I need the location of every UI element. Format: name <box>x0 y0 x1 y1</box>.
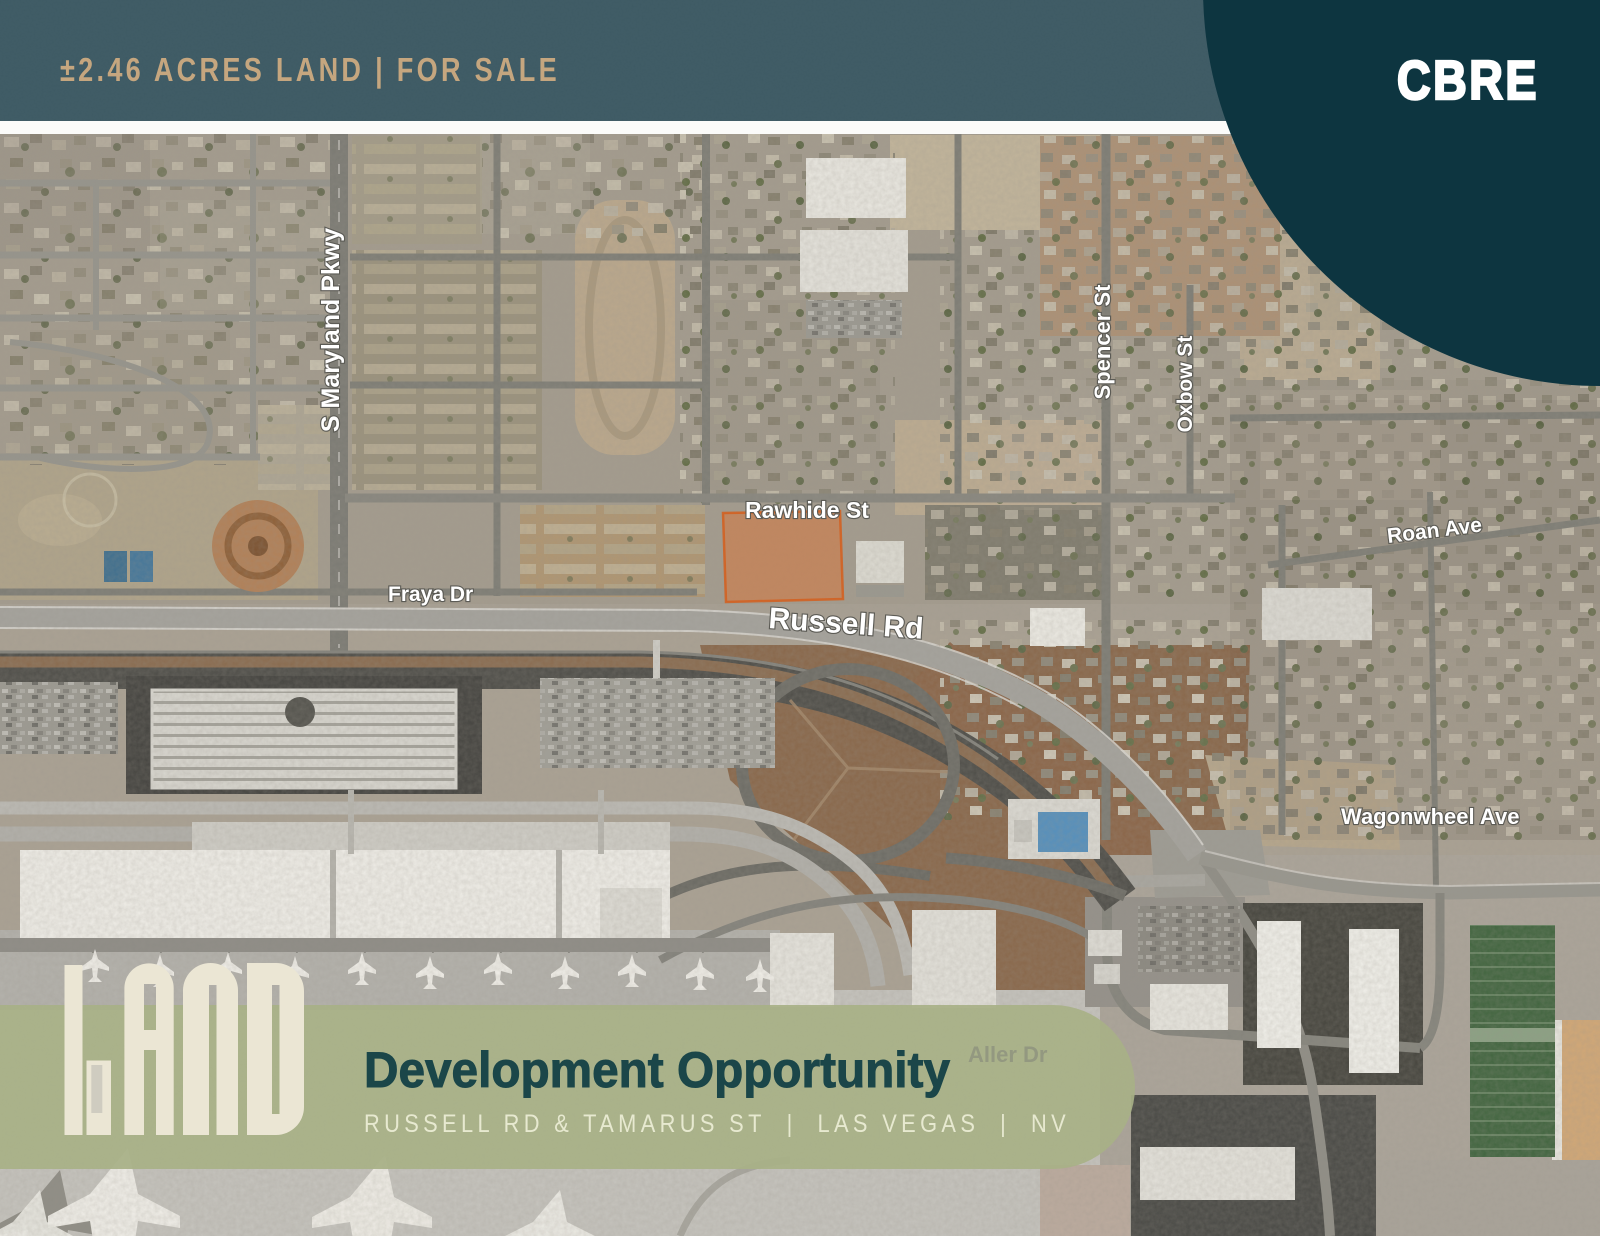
svg-text:S Maryland Pkwy: S Maryland Pkwy <box>317 228 345 432</box>
svg-text:Aller Dr: Aller Dr <box>968 1042 1048 1067</box>
svg-text:Rawhide St: Rawhide St <box>745 497 869 523</box>
svg-text:Development Opportunity: Development Opportunity <box>364 1042 950 1098</box>
svg-text:Spencer St: Spencer St <box>1090 284 1115 400</box>
svg-text:±2.46 ACRES LAND | FOR SALE: ±2.46 ACRES LAND | FOR SALE <box>60 51 560 88</box>
svg-text:CBRE: CBRE <box>1397 49 1539 111</box>
svg-text:RUSSELL RD & TAMARUS ST | LA: RUSSELL RD & TAMARUS ST | LAS VEGAS | NV <box>364 1110 1070 1138</box>
svg-text:Oxbow St: Oxbow St <box>1174 336 1197 433</box>
svg-text:Wagonwheel Ave: Wagonwheel Ave <box>1341 804 1519 829</box>
svg-text:Fraya Dr: Fraya Dr <box>388 583 473 606</box>
